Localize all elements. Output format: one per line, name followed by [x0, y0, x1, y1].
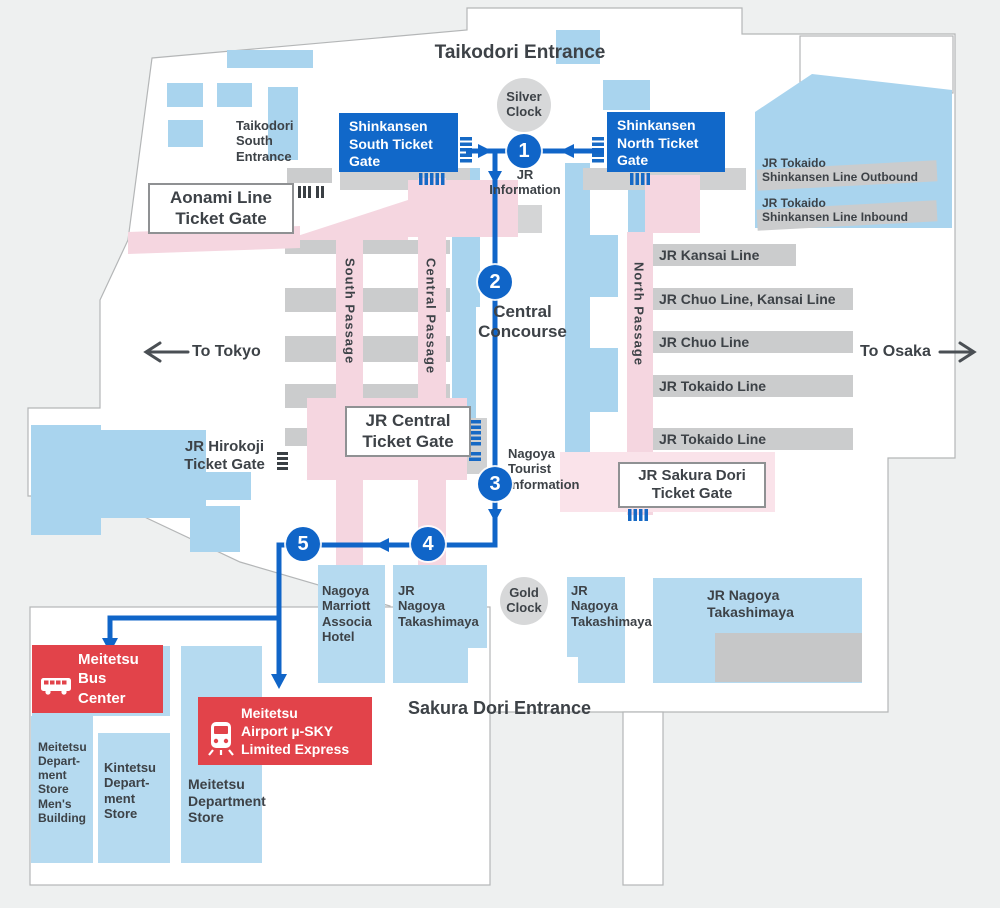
silver-clock: Silver Clock	[497, 78, 551, 132]
aonami-line-ticket-gate: Aonami Line Ticket Gate	[148, 183, 294, 234]
nagoya-station-map: Taikodori Entrance Taikodori South Entra…	[0, 0, 1000, 908]
takashimaya-inner-gray	[715, 633, 862, 682]
train-icon	[208, 702, 234, 760]
route-stop-5: 5	[286, 527, 320, 561]
meitetsu-bus-center-label: Meitetsu Bus Center	[78, 650, 139, 709]
gold-clock: Gold Clock	[500, 577, 548, 625]
meitetsu-airport-express-box: Meitetsu Airport µ-SKY Limited Express	[198, 697, 372, 765]
meitetsu-bus-center-box: Meitetsu Bus Center	[32, 645, 163, 713]
station-map-base	[0, 0, 1000, 908]
route-stop-3: 3	[478, 467, 512, 501]
route-stop-4: 4	[411, 527, 445, 561]
shinkansen-north-ticket-gate: Shinkansen North Ticket Gate	[607, 112, 725, 172]
shinkansen-south-ticket-gate: Shinkansen South Ticket Gate	[339, 113, 458, 172]
route-stop-1: 1	[507, 134, 541, 168]
route-stop-2: 2	[478, 265, 512, 299]
jr-sakura-dori-ticket-gate: JR Sakura Dori Ticket Gate	[618, 462, 766, 508]
jr-central-ticket-gate: JR Central Ticket Gate	[345, 406, 471, 457]
meitetsu-airport-express-label: Meitetsu Airport µ-SKY Limited Express	[241, 704, 349, 759]
bus-icon	[40, 655, 72, 704]
